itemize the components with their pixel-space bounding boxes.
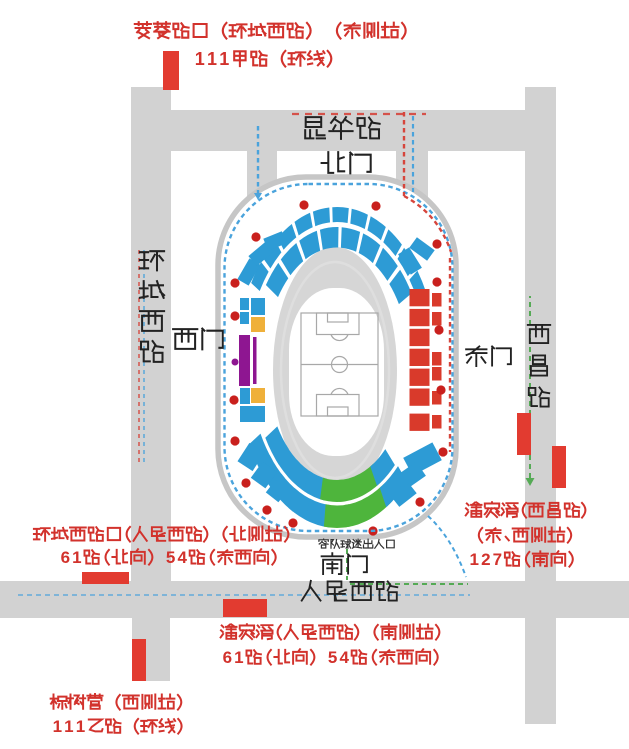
svg-text:4: 4 — [177, 548, 187, 567]
svg-text:1: 1 — [195, 49, 205, 69]
svg-text:1: 1 — [76, 717, 85, 736]
svg-text:1: 1 — [64, 717, 73, 736]
svg-text:1: 1 — [219, 49, 229, 69]
svg-text:7: 7 — [493, 550, 502, 569]
svg-text:1: 1 — [207, 49, 217, 69]
svg-text:4: 4 — [339, 648, 349, 667]
svg-text:5: 5 — [328, 648, 337, 667]
svg-text:1: 1 — [53, 717, 62, 736]
svg-text:1: 1 — [469, 550, 478, 569]
svg-text:1: 1 — [234, 648, 243, 667]
svg-text:2: 2 — [481, 550, 490, 569]
svg-text:1: 1 — [72, 548, 81, 567]
svg-text:5: 5 — [166, 548, 175, 567]
svg-text:6: 6 — [223, 648, 232, 667]
svg-text:6: 6 — [61, 548, 70, 567]
